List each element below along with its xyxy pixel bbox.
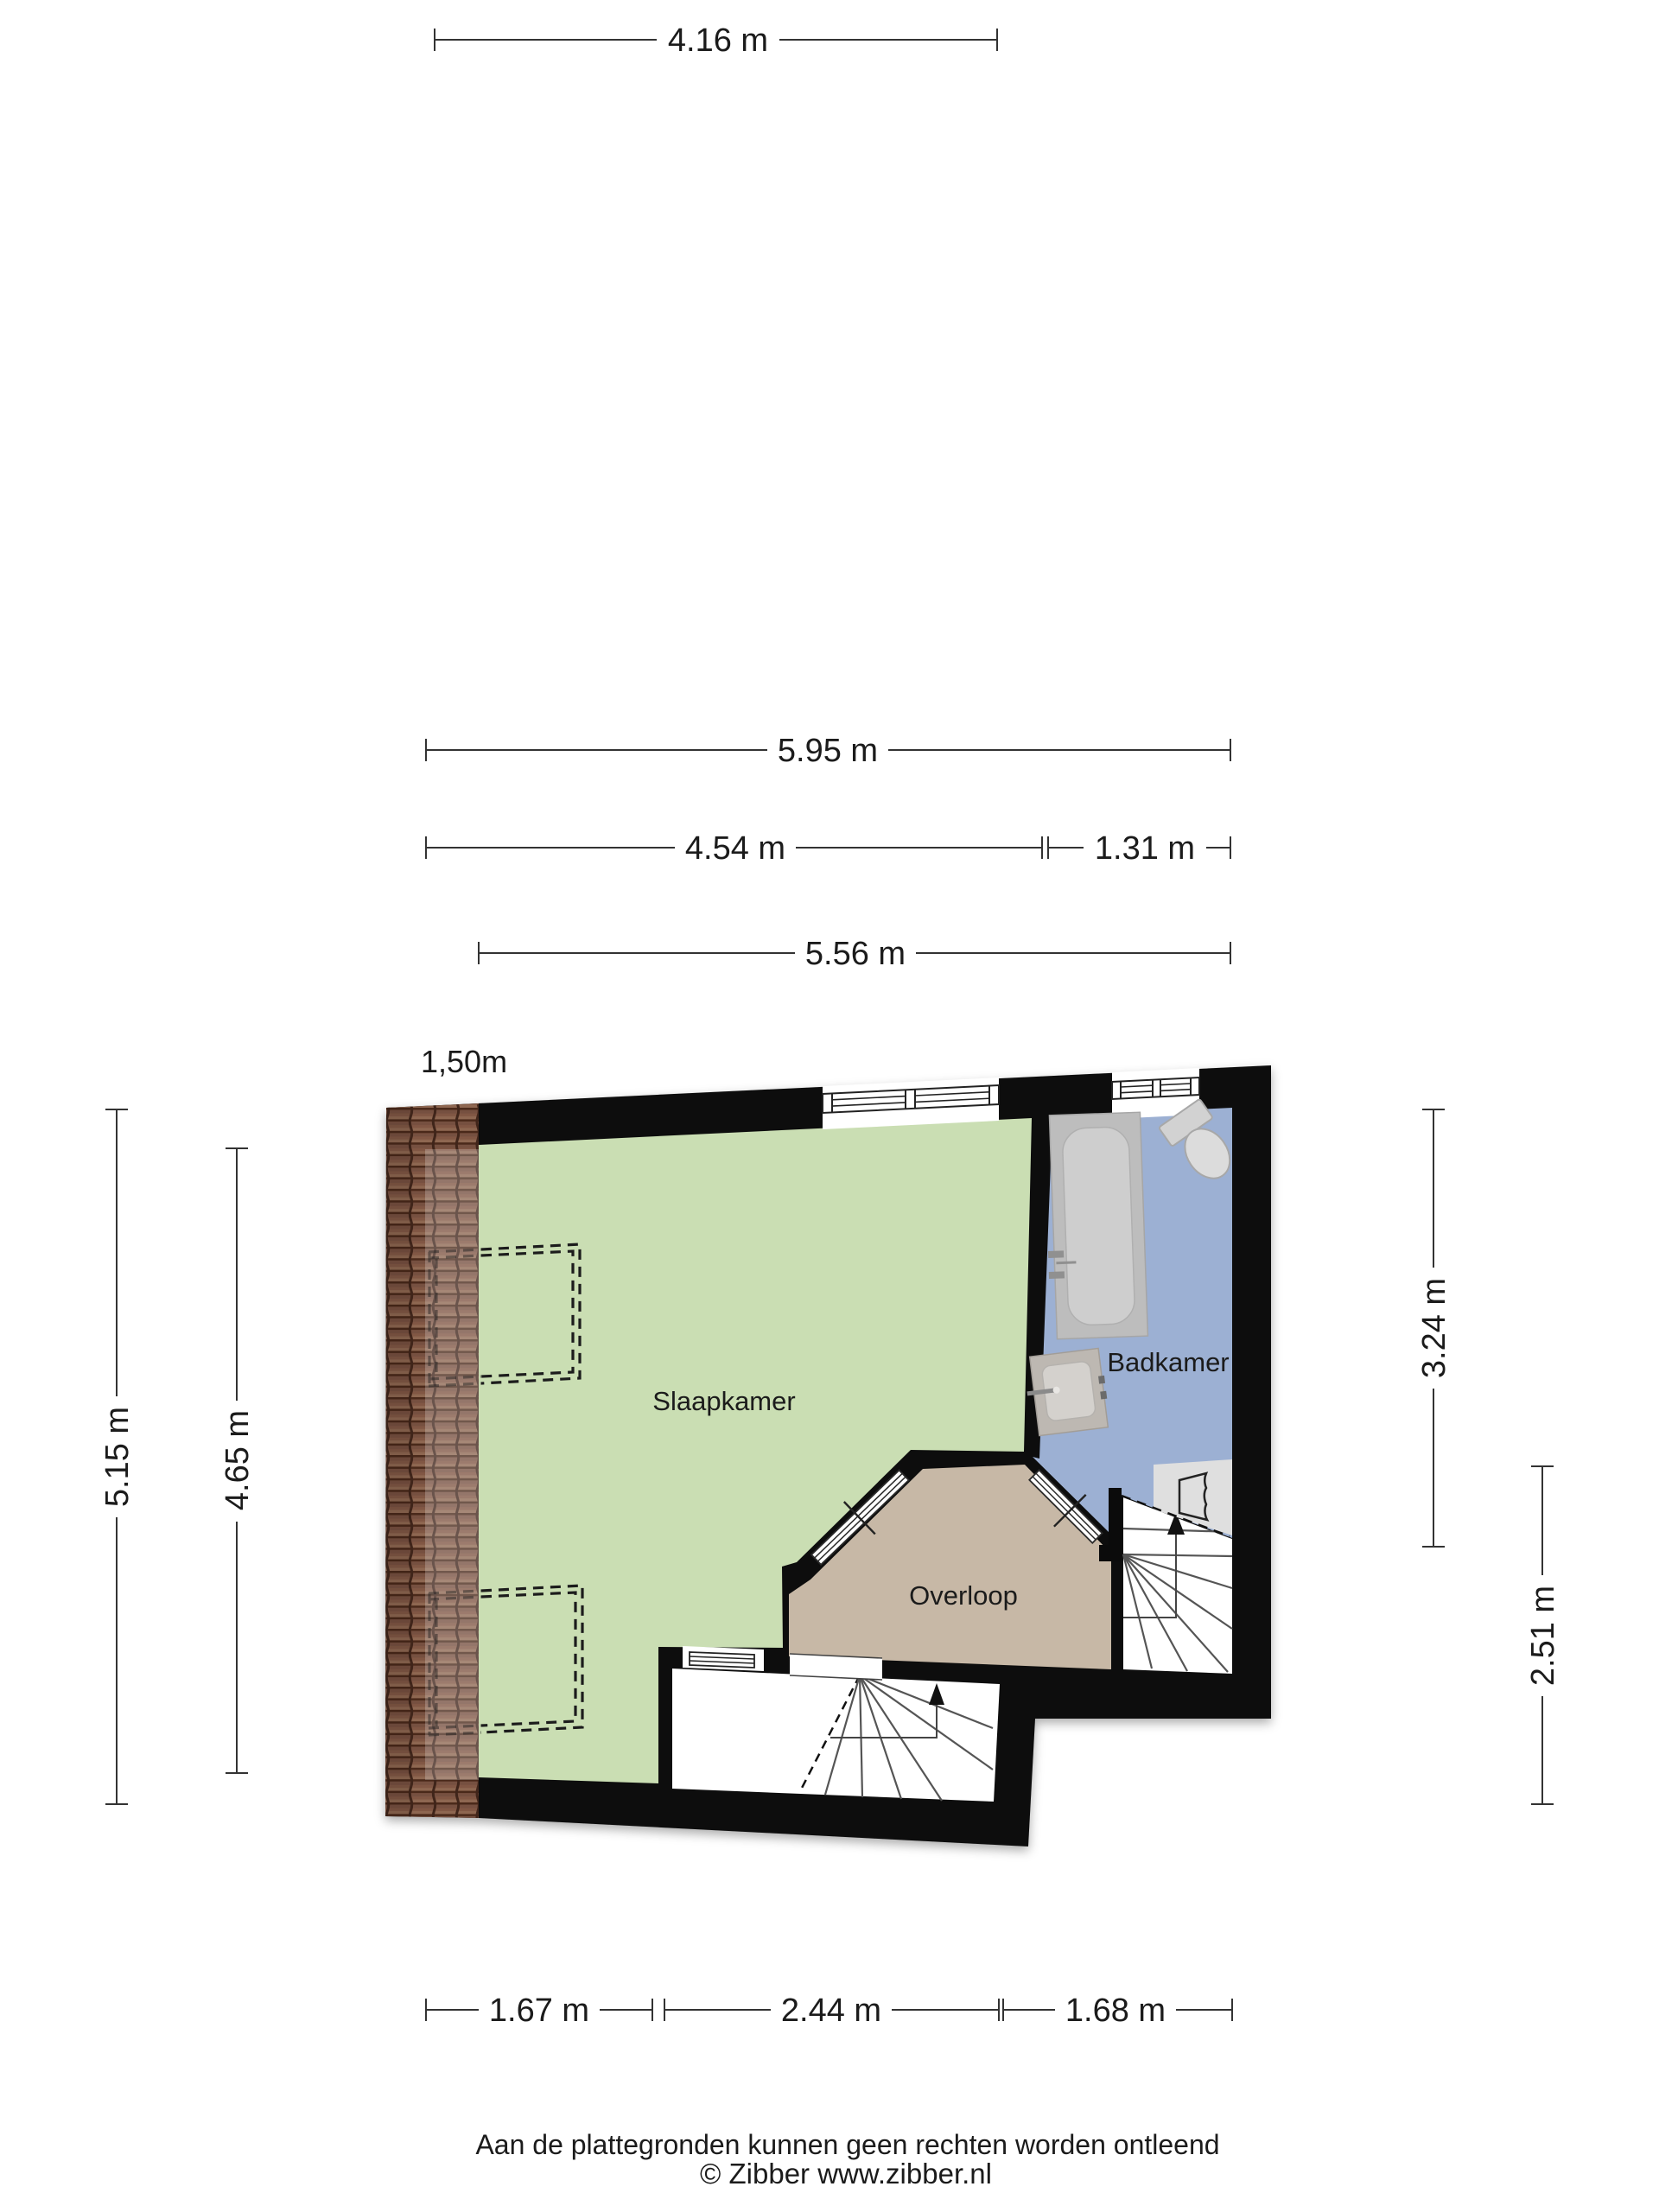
svg-text:4.54 m: 4.54 m (685, 830, 785, 867)
svg-text:Badkamer: Badkamer (1107, 1347, 1229, 1377)
svg-text:1,50m: 1,50m (421, 1044, 507, 1079)
svg-text:5.15 m: 5.15 m (99, 1407, 136, 1507)
svg-text:2.51 m: 2.51 m (1525, 1586, 1561, 1686)
svg-text:1.31 m: 1.31 m (1095, 830, 1195, 867)
svg-text:1.68 m: 1.68 m (1065, 1993, 1166, 2029)
svg-text:Aan de plattegronden kunnen ge: Aan de plattegronden kunnen geen rechten… (475, 2129, 1219, 2160)
svg-text:5.56 m: 5.56 m (805, 936, 906, 972)
svg-text:4.16 m: 4.16 m (668, 22, 768, 59)
svg-text:Overloop: Overloop (909, 1580, 1018, 1611)
svg-text:2.44 m: 2.44 m (781, 1993, 881, 2029)
svg-text:3.24 m: 3.24 m (1416, 1278, 1452, 1378)
svg-text:5.95 m: 5.95 m (778, 733, 878, 769)
svg-text:© Zibber www.zibber.nl: © Zibber www.zibber.nl (700, 2158, 992, 2190)
svg-text:1.67 m: 1.67 m (489, 1993, 589, 2029)
svg-text:4.65 m: 4.65 m (219, 1410, 256, 1510)
svg-text:Slaapkamer: Slaapkamer (652, 1386, 795, 1416)
